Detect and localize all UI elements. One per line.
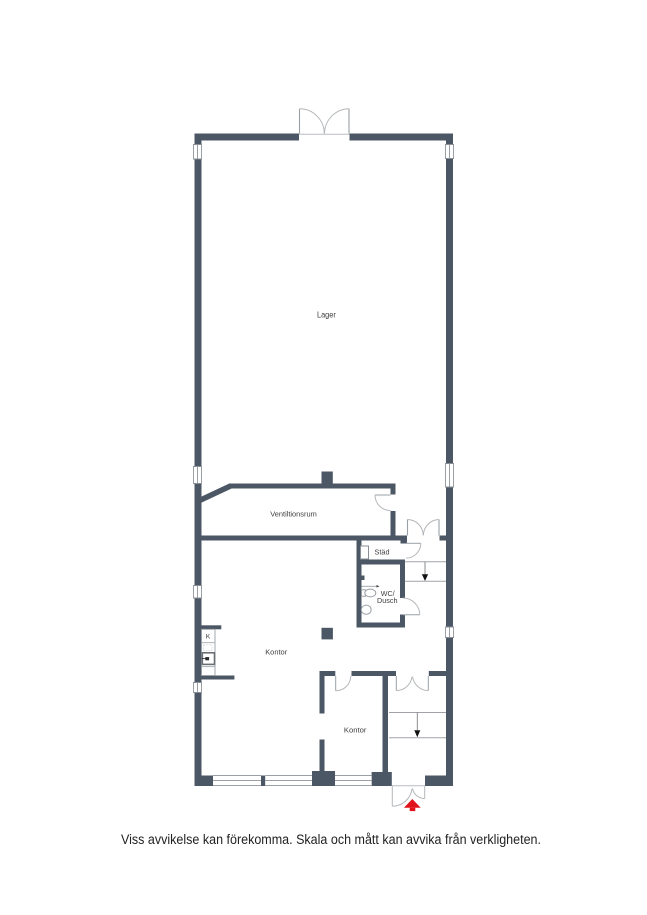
svg-text:Städ: Städ	[375, 548, 390, 557]
svg-text:Dusch: Dusch	[377, 598, 398, 605]
svg-text:K: K	[206, 634, 211, 641]
svg-text:Kontor: Kontor	[265, 648, 287, 657]
svg-text:Kontor: Kontor	[344, 725, 367, 734]
svg-text:Ventiltionsrum: Ventiltionsrum	[270, 509, 317, 518]
svg-text:Lager: Lager	[317, 310, 336, 319]
svg-text:Viss avvikelse kan förekomma.: Viss avvikelse kan förekomma. Skala och …	[121, 832, 541, 847]
svg-text:WC/: WC/	[381, 591, 395, 598]
